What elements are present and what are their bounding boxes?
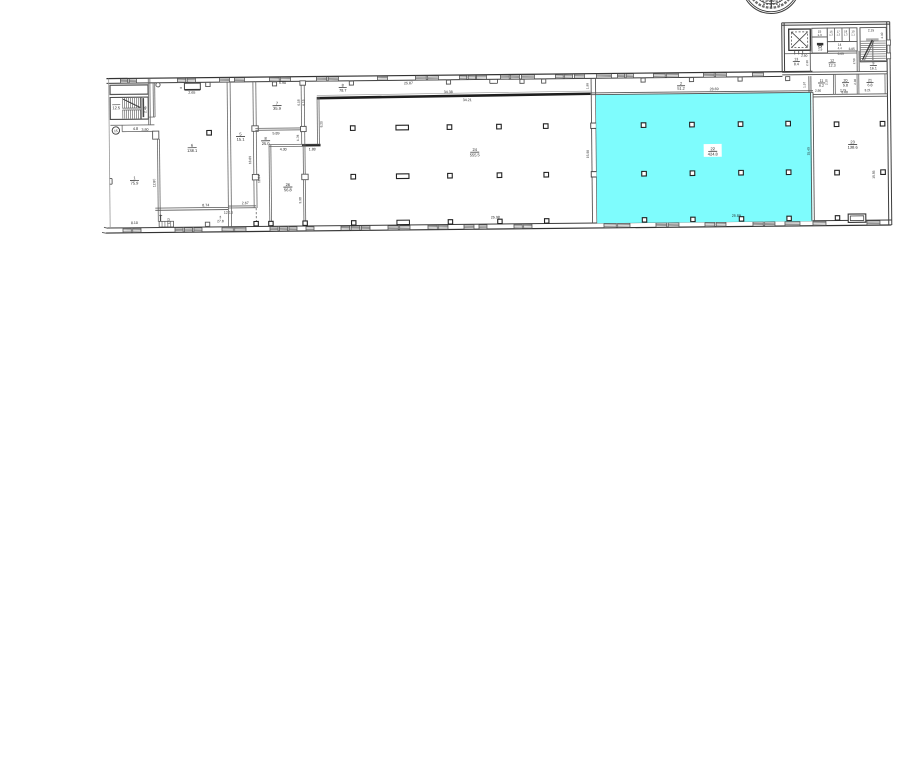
- svg-text:1.3: 1.3: [829, 33, 833, 37]
- svg-text:2.15: 2.15: [868, 28, 874, 32]
- svg-text:15.1: 15.1: [237, 137, 246, 142]
- svg-text:11.01: 11.01: [257, 175, 261, 183]
- svg-text:2.30: 2.30: [880, 32, 884, 38]
- svg-text:20: 20: [843, 79, 847, 83]
- svg-text:4.30: 4.30: [280, 147, 287, 151]
- svg-text:1.3: 1.3: [817, 33, 822, 37]
- svg-text:15.98: 15.98: [586, 150, 590, 158]
- svg-text:5.89: 5.89: [272, 131, 279, 135]
- svg-text:8.4: 8.4: [794, 62, 799, 66]
- svg-text:4.8: 4.8: [133, 127, 138, 131]
- svg-text:12.3: 12.3: [829, 64, 836, 68]
- svg-text:3.80: 3.80: [141, 128, 148, 132]
- svg-text:56.8: 56.8: [284, 187, 293, 192]
- svg-text:2.50: 2.50: [852, 58, 856, 64]
- svg-text:15.40: 15.40: [807, 147, 811, 155]
- svg-text:35.9: 35.9: [273, 106, 282, 111]
- svg-text:6.18: 6.18: [297, 99, 301, 105]
- svg-text:6.2: 6.2: [819, 84, 824, 88]
- svg-text:2.9: 2.9: [818, 47, 823, 51]
- svg-text:1.3: 1.3: [844, 32, 848, 36]
- svg-text:2.46: 2.46: [143, 106, 147, 113]
- svg-text:5.90: 5.90: [279, 81, 286, 85]
- svg-text:2.20: 2.20: [824, 79, 828, 85]
- svg-text:9.98: 9.98: [298, 197, 302, 203]
- svg-text:34.21: 34.21: [463, 98, 472, 102]
- svg-text:1.78: 1.78: [296, 135, 300, 141]
- svg-text:13: 13: [794, 57, 798, 61]
- svg-text:424.8: 424.8: [708, 151, 719, 156]
- svg-text:12: 12: [830, 59, 834, 63]
- svg-text:8: 8: [342, 83, 344, 87]
- svg-text:6.65: 6.65: [838, 52, 844, 56]
- svg-text:51.2: 51.2: [677, 87, 684, 91]
- svg-text:138.6: 138.6: [848, 145, 859, 150]
- svg-text:15: 15: [114, 129, 118, 133]
- svg-text:8.74: 8.74: [202, 203, 209, 207]
- svg-text:1.3: 1.3: [837, 32, 841, 36]
- svg-text:75.9: 75.9: [131, 180, 140, 185]
- svg-text:1.97: 1.97: [802, 82, 806, 88]
- svg-text:11: 11: [820, 79, 824, 83]
- svg-text:34.38: 34.38: [444, 90, 453, 94]
- svg-text:3.85: 3.85: [849, 47, 855, 51]
- svg-text:1.98: 1.98: [586, 83, 590, 89]
- svg-text:18.80: 18.80: [248, 156, 252, 164]
- svg-text:78.7: 78.7: [339, 89, 346, 93]
- svg-text:27.8: 27.8: [217, 219, 224, 223]
- svg-text:6.8: 6.8: [868, 83, 873, 87]
- svg-text:2.30: 2.30: [805, 60, 809, 66]
- svg-text:2.80: 2.80: [801, 54, 807, 58]
- svg-text:5.8: 5.8: [843, 83, 848, 87]
- svg-text:9: 9: [872, 62, 874, 66]
- svg-text:2: 2: [680, 82, 682, 86]
- svg-text:138.1: 138.1: [187, 148, 198, 153]
- svg-text:2.30: 2.30: [853, 79, 857, 85]
- svg-text:15.55: 15.55: [872, 170, 876, 178]
- svg-text:12.5: 12.5: [112, 105, 121, 110]
- svg-text:555.5: 555.5: [470, 152, 481, 157]
- svg-text:25.87: 25.87: [404, 81, 413, 85]
- svg-text:12.80: 12.80: [152, 179, 156, 188]
- svg-text:6.15: 6.15: [301, 99, 305, 105]
- svg-text:4.4: 4.4: [838, 46, 843, 50]
- svg-text:16.1: 16.1: [870, 66, 877, 70]
- svg-text:21: 21: [868, 78, 872, 82]
- svg-text:1.88: 1.88: [309, 147, 316, 151]
- svg-text:8.20: 8.20: [319, 121, 323, 127]
- svg-text:2.67: 2.67: [242, 201, 249, 205]
- svg-text:1.1: 1.1: [851, 32, 855, 36]
- svg-text:1.52: 1.52: [167, 218, 171, 224]
- svg-text:2.65: 2.65: [188, 91, 195, 95]
- svg-text:8.10: 8.10: [131, 221, 138, 225]
- svg-text:2.86: 2.86: [815, 89, 821, 93]
- svg-text:3.21: 3.21: [864, 88, 870, 92]
- svg-text:28.69: 28.69: [710, 87, 719, 91]
- svg-text:2.79: 2.79: [840, 88, 846, 92]
